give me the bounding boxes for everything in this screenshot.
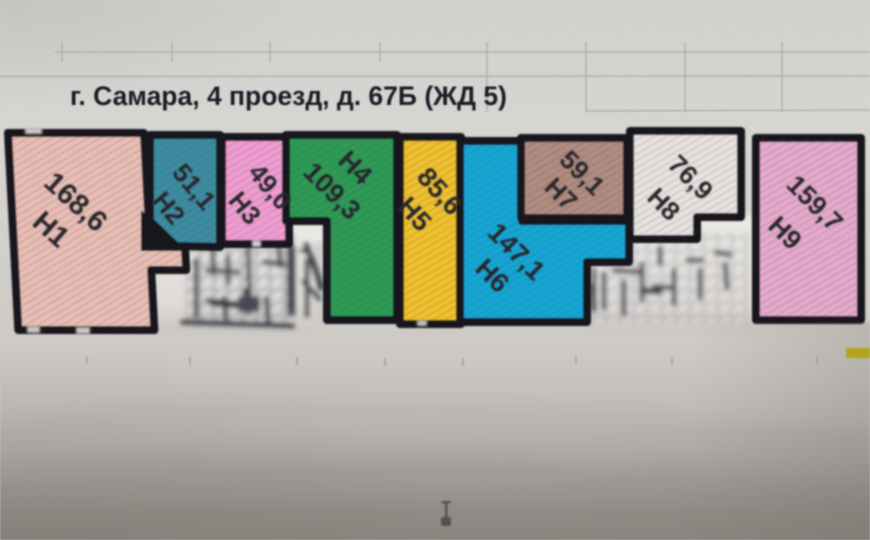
svg-text:г. Самара, 4 проезд, д. 67Б (Ж: г. Самара, 4 проезд, д. 67Б (ЖД 5) <box>70 81 507 111</box>
